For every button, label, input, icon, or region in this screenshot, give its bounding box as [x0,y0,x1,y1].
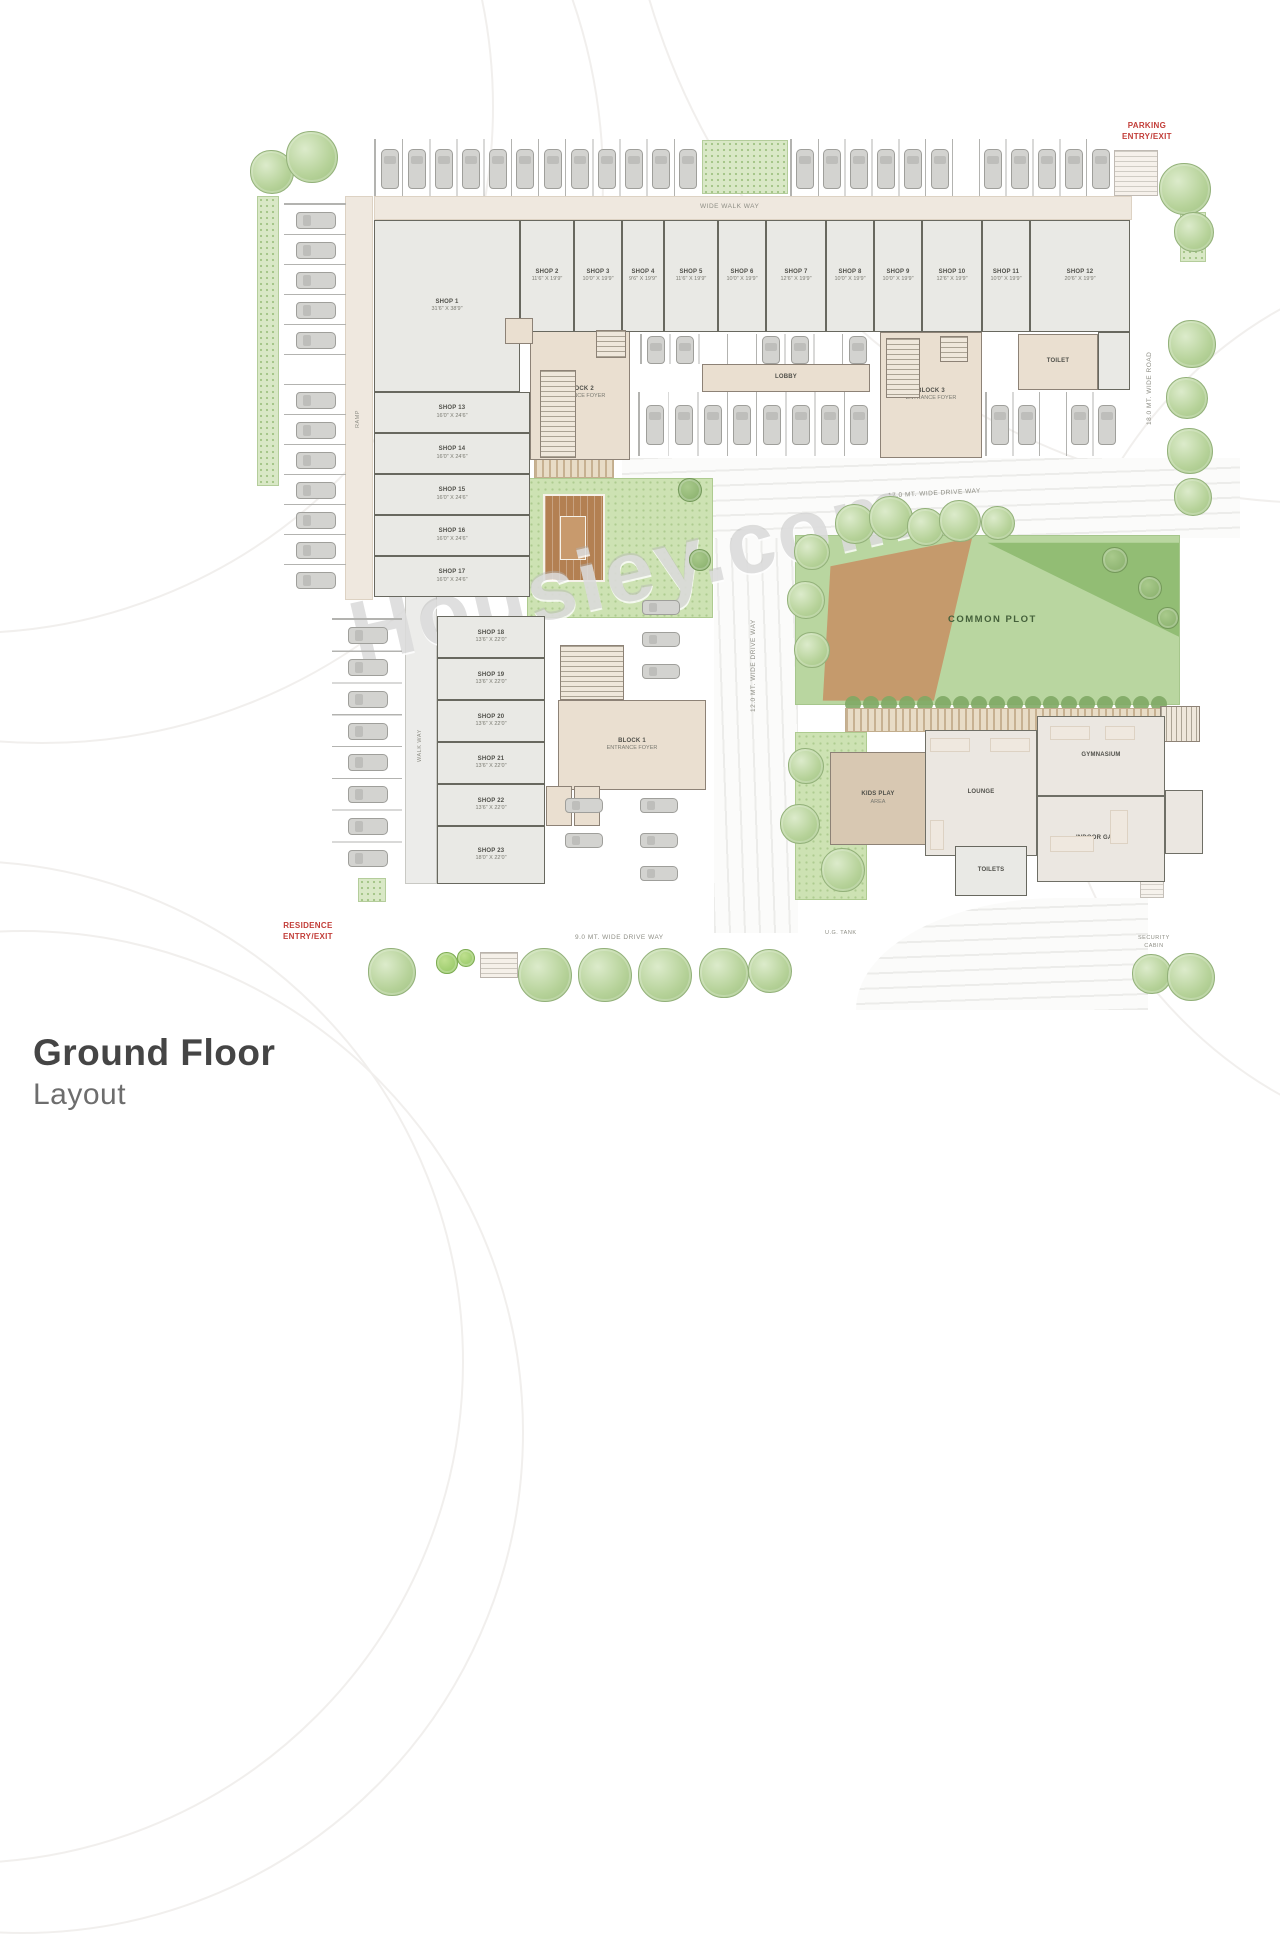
tree [678,478,702,502]
parked-car [348,659,388,676]
parked-car [676,336,694,364]
parked-car [642,664,680,679]
tree [939,500,981,542]
tree [699,948,749,998]
parking-stall-group [284,203,346,593]
room-dimensions: 11'6" X 19'9" [532,276,563,283]
room-label: SHOP 2 [535,269,558,277]
room-label: SHOP 18 [478,630,505,638]
parked-car [877,149,895,189]
parked-car [652,149,670,189]
parked-car [821,405,839,445]
room-label: SHOP 17 [439,569,466,577]
room-shop21: SHOP 2113'6" X 22'0" [437,742,545,784]
tree [436,952,458,974]
room-toilet: TOILET [1018,334,1098,390]
gate-ramp-bottom [480,952,518,978]
road-18m-label: 18.0 MT. WIDE ROAD [1146,352,1153,425]
room-label: SHOP 1 [435,299,458,307]
room-label: SHOP 5 [679,269,702,277]
room-shop5: SHOP 511'6" X 19'9" [664,220,718,332]
plan-structure [1050,836,1094,852]
parking-stall-group [332,618,402,872]
parked-car [791,336,809,364]
parking-stall-group [985,392,1118,456]
room-dimensions: 9'6" X 19'9" [629,276,657,283]
room-dimensions: 16'0" X 24'6" [436,454,467,461]
tree [1167,953,1215,1001]
parked-car [348,754,388,771]
parked-car [489,149,507,189]
parked-car [348,691,388,708]
parked-car [1038,149,1056,189]
parked-car [296,302,336,319]
common-plot-label: COMMON PLOT [948,614,1037,625]
room-shop13: SHOP 1316'0" X 24'6" [374,392,530,433]
parked-car [850,405,868,445]
parked-car [296,482,336,499]
parked-car [348,627,388,644]
room-label: SHOP 3 [586,269,609,277]
parked-car [348,786,388,803]
room-dimensions: 10'0" X 19'9" [834,276,865,283]
tree [638,948,692,1002]
room-label: SHOP 23 [478,848,505,856]
room-label: SHOP 6 [730,269,753,277]
tree [689,549,711,571]
tree [368,948,416,996]
tree [1102,547,1128,573]
parked-car [296,572,336,589]
room-dimensions: 20'6" X 19'9" [1064,276,1095,283]
room-shop4: SHOP 49'6" X 19'9" [622,220,664,332]
parked-car [1065,149,1083,189]
room-dimensions: 13'6" X 22'0" [475,679,506,686]
room-kids: KIDS PLAYAREA [830,752,926,845]
room-label: GYMNASIUM [1081,752,1120,760]
driveway-12m [714,538,798,933]
room-lobby: LOBBY [702,364,870,392]
room-label: SHOP 7 [784,269,807,277]
tree [1138,576,1162,600]
tree [457,949,475,967]
parked-car [348,850,388,867]
room-dimensions: 18'0" X 22'0" [475,855,506,862]
parked-car [733,405,751,445]
room-label: SHOP 13 [439,405,466,413]
parked-car [296,392,336,409]
tree [518,948,572,1002]
room-dimensions: 16'0" X 24'6" [436,536,467,543]
road-left [345,196,373,600]
parked-car [296,332,336,349]
tree [578,948,632,1002]
room-shop10: SHOP 1012'6" X 19'9" [922,220,982,332]
plan-structure [1105,726,1135,740]
parking-stall-group [638,392,872,456]
room-label: SHOP 19 [478,672,505,680]
tree [1132,954,1172,994]
room-dimensions: 12'6" X 19'9" [936,276,967,283]
room-shop23: SHOP 2318'0" X 22'0" [437,826,545,884]
tree [1174,478,1212,516]
room-dimensions: 10'0" X 19'9" [882,276,913,283]
parked-car [348,818,388,835]
parked-car [625,149,643,189]
parking-stall-group [640,334,870,364]
room-shop9: SHOP 910'0" X 19'9" [874,220,922,332]
tree [780,804,820,844]
parked-car [296,242,336,259]
parked-car [1098,405,1116,445]
room-dimensions: 10'0" X 19'9" [582,276,613,283]
security-cabin-label: SECURITYCABIN [1138,934,1170,951]
tree [1174,212,1214,252]
room-shop11: SHOP 1110'0" X 19'9" [982,220,1030,332]
parked-car [647,336,665,364]
room-wc: TOILETS [955,846,1027,896]
room-shop16: SHOP 1616'0" X 24'6" [374,515,530,556]
room-label: SHOP 11 [993,269,1019,277]
parked-car [931,149,949,189]
tree [869,496,913,540]
parked-car [296,512,336,529]
parked-car [704,405,722,445]
room-shop14: SHOP 1416'0" X 24'6" [374,433,530,474]
room-label: BLOCK 3 [917,388,945,396]
parked-car [1011,149,1029,189]
parked-car [296,422,336,439]
parked-car [296,542,336,559]
plan-structure [940,336,968,362]
room-label: KIDS PLAY [861,791,894,799]
plan-structure [560,645,624,700]
clubhouse-stair [1160,706,1200,742]
parked-car [675,405,693,445]
room-label: SHOP 21 [478,756,505,764]
parked-car [516,149,534,189]
parked-car [640,833,678,848]
plan-structure [1050,726,1090,740]
tree [1168,320,1216,368]
room-dimensions: 10'0" X 19'9" [726,276,757,283]
tree [794,534,830,570]
room-dimensions: 11'6" X 19'9" [676,276,707,283]
parked-car [762,336,780,364]
tree [787,581,825,619]
parked-car [565,798,603,813]
room-dimensions: 13'6" X 22'0" [475,805,506,812]
plan-structure [540,370,576,458]
parked-car [991,405,1009,445]
room-label: SHOP 10 [939,269,966,277]
parked-car [565,833,603,848]
ramp-left-label: RAMP [355,410,361,428]
room-dimensions: AREA [871,799,886,806]
room-shop18: SHOP 1813'6" X 22'0" [437,616,545,658]
room-label: TOILETS [978,867,1005,875]
parked-car [849,336,867,364]
parked-car [679,149,697,189]
plan-structure [990,738,1030,752]
plan-structure [886,338,920,398]
floor-plan-page: { "header": { "title": "Ground Floor", "… [0,0,1280,1200]
parked-car [348,723,388,740]
planter-small-bottom-left [358,878,386,902]
parked-car [642,632,680,647]
room-shop3: SHOP 310'0" X 19'9" [574,220,622,332]
room-dimensions: 10'0" X 19'9" [990,276,1021,283]
tree [286,131,338,183]
room-dimensions: 16'0" X 24'6" [436,495,467,502]
tree [981,506,1015,540]
parked-car [381,149,399,189]
parking-stall-group [790,139,1112,196]
room-label: SHOP 9 [886,269,909,277]
parking-stall-group [374,139,700,196]
plan-structure [1098,332,1130,390]
plan-structure [1110,810,1128,844]
walkway-top-label: WIDE WALK WAY [700,203,759,210]
entry-exit-bottom-left: RESIDENCE ENTRY/EXIT [283,920,333,942]
page-subtitle: Layout [33,1078,126,1112]
room-shop17: SHOP 1716'0" X 24'6" [374,556,530,597]
room-shop6: SHOP 610'0" X 19'9" [718,220,766,332]
room-block1: BLOCK 1ENTRANCE FOYER [558,700,706,790]
parked-car [642,600,680,615]
parked-car [571,149,589,189]
room-dimensions: ENTRANCE FOYER [607,745,658,752]
parked-car [1071,405,1089,445]
parked-car [408,149,426,189]
tree [821,848,865,892]
parked-car [984,149,1002,189]
driveway-9m-label: 9.0 MT. WIDE DRIVE WAY [575,934,664,941]
tree [794,632,830,668]
room-shop1: SHOP 131'6" X 38'9" [374,220,520,392]
room-dimensions: 13'6" X 22'0" [475,763,506,770]
room-shop12: SHOP 1220'6" X 19'9" [1030,220,1130,332]
planter-left-edge [257,196,279,486]
room-shop7: SHOP 712'6" X 19'9" [766,220,826,332]
room-label: SHOP 4 [631,269,654,277]
parked-car [296,272,336,289]
deck-table [560,516,586,560]
tree [1167,428,1213,474]
parked-car [1092,149,1110,189]
room-label: BLOCK 1 [618,738,646,746]
room-shop22: SHOP 2213'6" X 22'0" [437,784,545,826]
walk-left-label: WALK WAY [417,729,423,762]
room-dimensions: 16'0" X 24'6" [436,577,467,584]
room-label: SHOP 15 [439,487,466,495]
gate-ramp-top-right [1114,150,1158,196]
plan-structure [596,330,626,358]
parked-car [850,149,868,189]
plan-structure [930,738,970,752]
room-dimensions: 16'0" X 24'6" [436,413,467,420]
parked-car [646,405,664,445]
room-label: TOILET [1047,358,1069,366]
entry-exit-top-right: PARKING ENTRY/EXIT [1122,120,1172,142]
tree [1157,607,1179,629]
room-label: LOBBY [775,374,797,382]
parked-car [796,149,814,189]
parked-car [763,405,781,445]
parked-car [823,149,841,189]
room-label: SHOP 8 [838,269,861,277]
room-label: SHOP 12 [1067,269,1094,277]
floor-plan-canvas: WIDE WALK WAY 17.0 MT. WIDE DRIVE WAY 12… [0,0,1280,1200]
parked-car [1018,405,1036,445]
room-dimensions: 13'6" X 22'0" [475,637,506,644]
tree [788,748,824,784]
driveway-bottom [856,898,1148,1010]
room-label: SHOP 16 [439,528,466,536]
room-shop19: SHOP 1913'6" X 22'0" [437,658,545,700]
tree [1159,163,1211,215]
parked-car [904,149,922,189]
room-dimensions: 12'6" X 19'9" [780,276,811,283]
page-title: Ground Floor [33,1032,275,1074]
parked-car [462,149,480,189]
room-dimensions: 13'6" X 22'0" [475,721,506,728]
room-shop20: SHOP 2013'6" X 22'0" [437,700,545,742]
parked-car [640,798,678,813]
parked-car [792,405,810,445]
room-shop8: SHOP 810'0" X 19'9" [826,220,874,332]
planter-top-middle [702,140,788,194]
parked-car [640,866,678,881]
tree [748,949,792,993]
room-dimensions: 31'6" X 38'9" [431,306,462,313]
room-shop2: SHOP 211'6" X 19'9" [520,220,574,332]
parked-car [435,149,453,189]
room-label: SHOP 20 [478,714,505,722]
clubhouse-store [1165,790,1203,854]
parked-car [296,452,336,469]
plan-structure [505,318,533,344]
parked-car [598,149,616,189]
parked-car [296,212,336,229]
room-label: SHOP 14 [439,446,466,454]
room-label: SHOP 22 [478,798,505,806]
room-label: LOUNGE [968,789,995,797]
ug-tank-label: U.G. TANK [825,930,857,936]
parked-car [544,149,562,189]
plan-structure [930,820,944,850]
tree [1166,377,1208,419]
room-shop15: SHOP 1516'0" X 24'6" [374,474,530,515]
driveway-12m-label: 12.0 MT. WIDE DRIVE WAY [750,619,757,712]
